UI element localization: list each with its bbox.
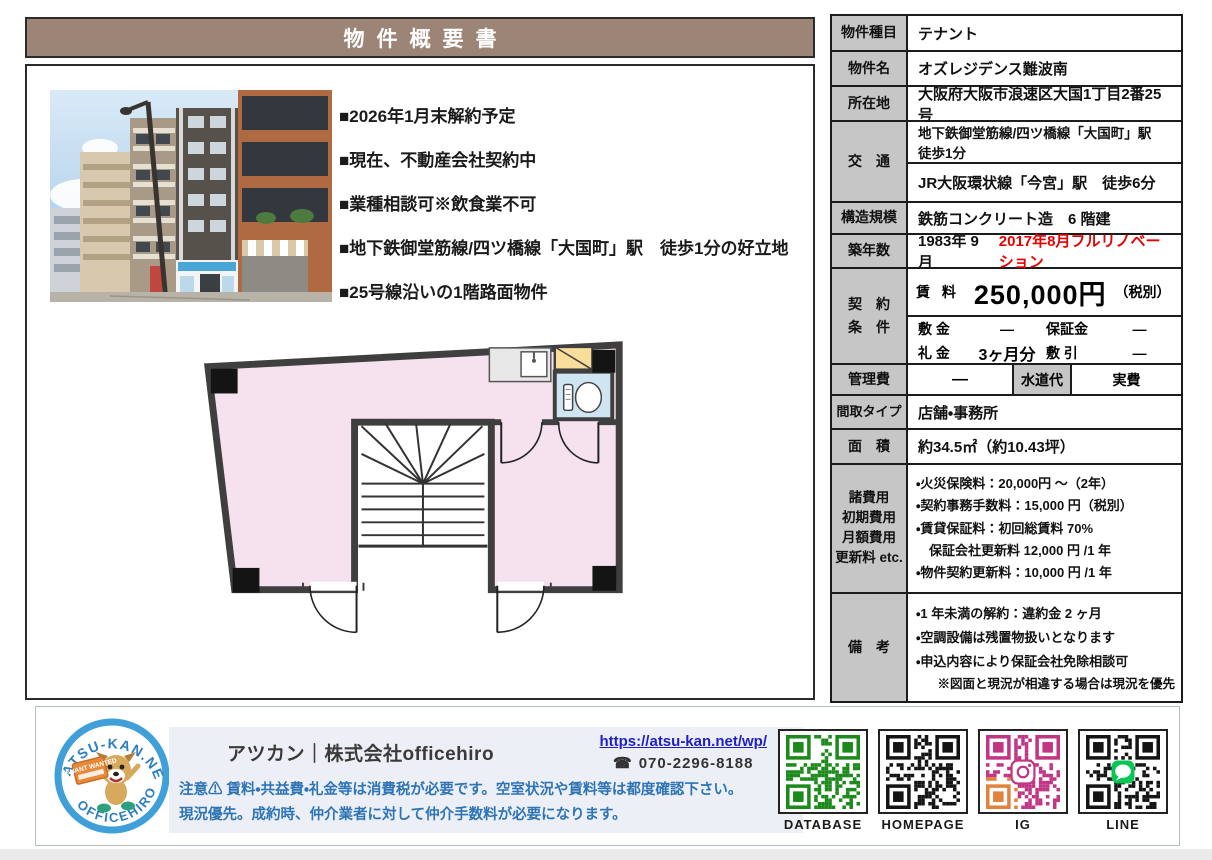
highlight-list: ■2026年1月末解約予定 ■現在、不動産会社契約中 ■業種相談可※飲食業不可 … [339, 102, 811, 303]
row-built-year: 築年数 1983年 9 月 2017年8月フルリノベーション [832, 235, 1181, 269]
row-address: 所在地 大阪府大阪市浪速区大国1丁目2番25号 [832, 87, 1181, 122]
row-label: 構造規模 [832, 203, 908, 233]
row-label: 交 通 [832, 122, 908, 201]
row-notes: 備 考 ・1 年未満の解約：違約金 2 ヶ月 ・空調設備は残置物扱いとなります … [832, 594, 1181, 701]
tax-notice-line-1: 注意⚠ 賃料・共益費・礼金等は消費税が必要です。空室状況や賃料等は都度確認下さい… [179, 778, 793, 803]
company-name: アツカン｜株式会社officehiro [227, 739, 494, 766]
row-property-kind: 物件種目 テナント [832, 16, 1181, 52]
contract-label-1: 契 約 [848, 296, 890, 314]
document-title-bar: 物件概要書 [25, 17, 815, 58]
page-bottom-strip [0, 849, 1212, 860]
main-content-box: ■2026年1月末解約予定 ■現在、不動産会社契約中 ■業種相談可※飲食業不可 … [25, 64, 815, 700]
fee-item: 保証会社更新料 12,000 円 /1 年 [916, 540, 1173, 562]
qr-line-image [1086, 735, 1160, 809]
contract-label-2: 条 件 [848, 319, 890, 337]
row-management-fee: 管理費 — 水道代 実費 [832, 365, 1181, 396]
qr-homepage-image [886, 735, 960, 809]
deposit-value: — [968, 321, 1046, 337]
row-value: テナント [908, 16, 1181, 50]
fee-item: ・契約事務手数料：15,000 円（税別） [916, 495, 1173, 517]
rent-tax-note: （税別） [1115, 282, 1171, 302]
row-value: 鉄筋コンクリート造 6 階建 [908, 203, 1181, 233]
phone-icon: ☎ [613, 755, 633, 772]
fees-label-line: 月額費用 [842, 530, 896, 547]
highlight-item: ■地下鉄御堂筋線/四ツ橋線「大国町」駅 徒歩1分の好立地 [339, 234, 811, 259]
guarantee-label: 保証金 [1046, 319, 1108, 339]
row-label: 築年数 [832, 235, 908, 267]
fees-label-line: 諸費用 [849, 490, 890, 507]
highlight-item: ■2026年1月末解約予定 [339, 102, 811, 127]
qr-database: DATABASE [778, 729, 868, 832]
fee-item: ・賃貸保証料：初回総賃料 70% [916, 518, 1173, 540]
shikibiki-label: 敷 引 [1046, 343, 1108, 363]
deposit-label: 敷 金 [918, 319, 968, 339]
row-layout-type: 間取タイプ 店舗・事務所 [832, 396, 1181, 430]
qr-homepage-label: HOMEPAGE [878, 817, 968, 832]
property-spec-table: 物件種目 テナント 物件名 オズレジデンス難波南 所在地 大阪府大阪市浪速区大国… [830, 14, 1183, 703]
row-label: 備 考 [832, 594, 908, 701]
row-fees: 諸費用 初期費用 月額費用 更新料 etc. ・火災保険料：20,000円 ～（… [832, 465, 1181, 594]
phone-number[interactable]: 070-2296-8188 [639, 755, 754, 772]
row-label: 面 積 [832, 430, 908, 463]
row-value: 約34.5㎡（約10.43坪） [908, 430, 1181, 463]
toilet-room [555, 372, 612, 420]
company-info-panel: アツカン｜株式会社officehiro https://atsu-kan.net… [169, 727, 803, 833]
qr-homepage: HOMEPAGE [878, 729, 968, 832]
tax-notice-line-2: 現況優先。成約時、仲介業者に対して仲介手数料が必要になります。 [179, 803, 793, 828]
water-fee-label: 水道代 [1014, 365, 1072, 394]
row-contract-terms: 契 約 条 件 賃 料 250,000円 （税別） 敷 金 — 保証金 — 礼 … [832, 269, 1181, 365]
row-label: 物件名 [832, 52, 908, 85]
property-sheet-page: 物件概要書 [0, 0, 1212, 860]
note-item: ・1 年未満の解約：違約金 2 ヶ月 [916, 602, 1173, 626]
row-label: 管理費 [832, 365, 908, 394]
water-fee-value: 実費 [1072, 365, 1181, 394]
note-item: ・空調設備は残置物扱いとなります [916, 626, 1173, 650]
rent-value: 250,000円 [974, 273, 1107, 312]
qr-instagram-label: IG [978, 817, 1068, 832]
highlight-item: ■現在、不動産会社契約中 [339, 146, 811, 171]
qr-code-strip: DATABASE HOMEPAGE IG LINE [778, 729, 1168, 832]
row-value: 大阪府大阪市浪速区大国1丁目2番25号 [908, 87, 1181, 120]
row-value: 店舗・事務所 [908, 396, 1181, 428]
qr-instagram: IG [978, 729, 1068, 832]
shikibiki-value: — [1108, 345, 1171, 361]
row-value: オズレジデンス難波南 [908, 52, 1181, 85]
fees-label-line: 更新料 etc. [835, 550, 903, 567]
fees-label-line: 初期費用 [842, 510, 896, 527]
highlight-item: ■25号線沿いの1階路面物件 [339, 278, 811, 303]
row-access: 交 通 地下鉄御堂筋線/四ツ橋線「大国町」駅 徒歩1分 JR大阪環状線「今宮」駅… [832, 122, 1181, 203]
floor-plan [195, 334, 641, 668]
staircase [362, 423, 485, 546]
fee-item: ・火災保険料：20,000円 ～（2年） [916, 473, 1173, 495]
fee-item: ・物件契約更新料：10,000 円 /1 年 [916, 562, 1173, 584]
building-photo [50, 90, 332, 302]
note-item: ・申込内容により保証会社免除相談可 [916, 650, 1173, 674]
row-label: 所在地 [832, 87, 908, 120]
closet [555, 347, 593, 370]
company-website-link[interactable]: https://atsu-kan.net/wp/ [599, 733, 767, 750]
qr-line-label: LINE [1078, 817, 1168, 832]
qr-database-label: DATABASE [778, 817, 868, 832]
qr-instagram-image [986, 735, 1060, 809]
row-label: 間取タイプ [832, 396, 908, 428]
footer-bar: ATSU-KAN.NET OFFICEHIRO TEN [35, 706, 1180, 846]
notes-footnote: ※図面と現況が相違する場合は現況を優先 [937, 673, 1175, 696]
management-fee-value: — [908, 365, 1014, 394]
qr-database-image [786, 735, 860, 809]
renovation-note: 2017年8月フルリノベーション [999, 230, 1171, 272]
built-year: 1983年 9 月 [918, 230, 985, 272]
access-line-2: JR大阪環状線「今宮」駅 徒歩6分 [908, 162, 1181, 201]
row-area: 面 積 約34.5㎡（約10.43坪） [832, 430, 1181, 465]
document-title: 物件概要書 [332, 23, 509, 53]
company-logo: ATSU-KAN.NET OFFICEHIRO TEN [52, 714, 172, 838]
guarantee-value: — [1108, 321, 1171, 337]
kitchen-sink [489, 348, 550, 382]
highlight-item: ■業種相談可※飲食業不可 [339, 190, 811, 215]
key-money-value: 3ヶ月分 [968, 341, 1046, 365]
rent-label: 賃 料 [916, 282, 960, 302]
qr-line: LINE [1078, 729, 1168, 832]
access-line-1: 地下鉄御堂筋線/四ツ橋線「大国町」駅 徒歩1分 [908, 122, 1181, 162]
key-money-label: 礼 金 [918, 343, 968, 363]
row-label: 物件種目 [832, 16, 908, 50]
